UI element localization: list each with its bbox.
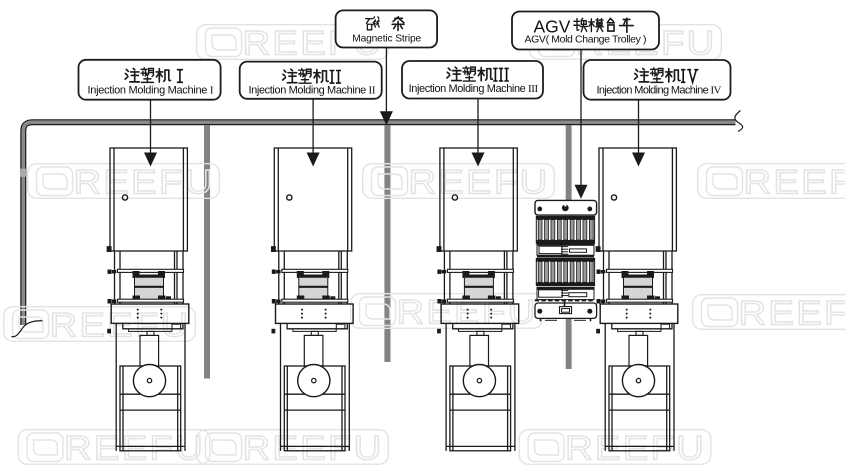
svg-text:Injection Molding Machine III: Injection Molding Machine III bbox=[409, 83, 539, 95]
svg-text:Injection Molding Machine II: Injection Molding Machine II bbox=[249, 84, 376, 96]
svg-text:Magnetic Stripe: Magnetic Stripe bbox=[352, 33, 421, 44]
svg-text:AGV( Mold Change Trolley ): AGV( Mold Change Trolley ) bbox=[525, 34, 647, 46]
svg-text:Injection Molding Machine IV: Injection Molding Machine IV bbox=[597, 85, 722, 97]
svg-text:Injection Molding Machine I: Injection Molding Machine I bbox=[88, 85, 214, 97]
